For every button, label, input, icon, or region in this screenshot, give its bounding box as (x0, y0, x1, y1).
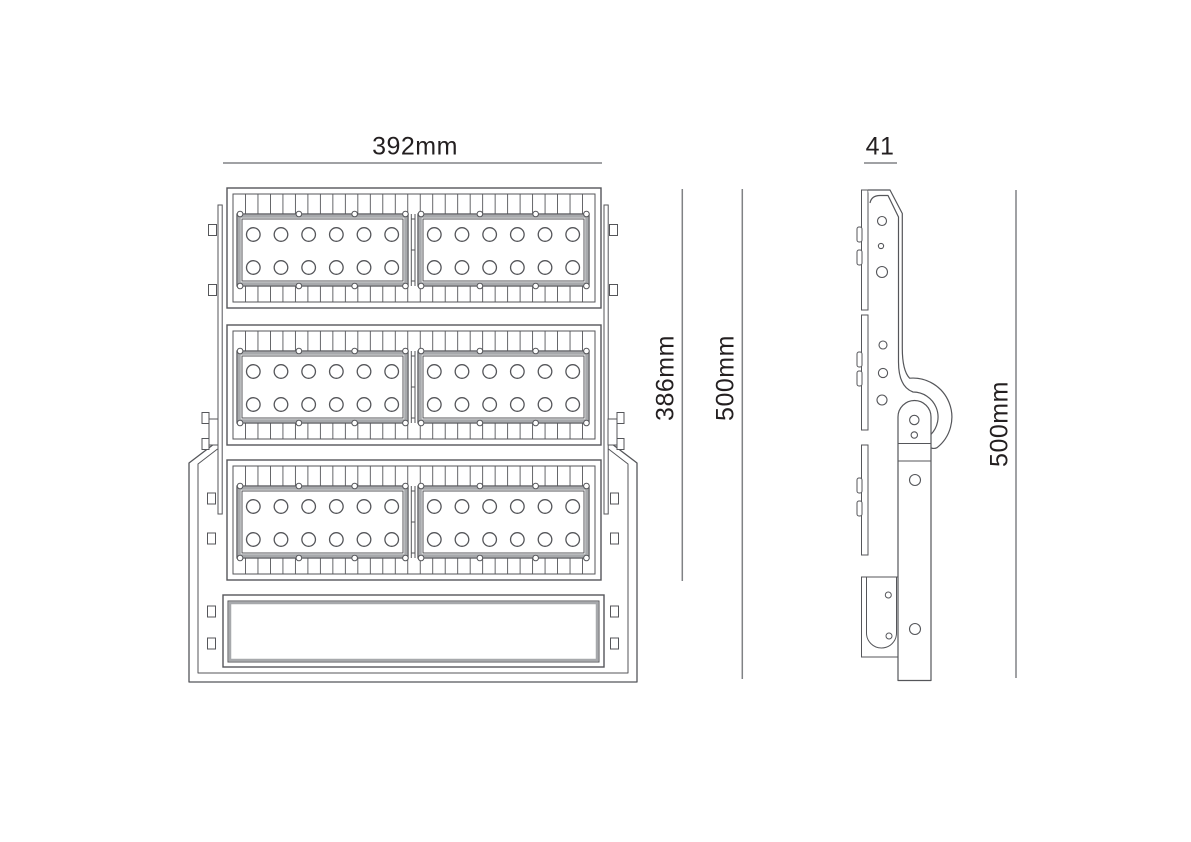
side-arm (898, 401, 931, 681)
front-module-row (227, 460, 601, 580)
front-module-row (227, 325, 601, 445)
drawing-canvas: 392mm 386mm 500mm 41 500mm (0, 0, 1191, 842)
dimension-label-side-depth: 41 (866, 135, 895, 160)
front-module-row (227, 188, 601, 308)
dimension-label-front-width: 392mm (372, 135, 458, 160)
dimension-label-side-overall-height: 500mm (988, 381, 1013, 467)
front-driver-box (223, 595, 604, 667)
dimension-label-front-overall-height: 500mm (714, 335, 739, 421)
dimension-label-front-body-height: 386mm (654, 335, 679, 421)
